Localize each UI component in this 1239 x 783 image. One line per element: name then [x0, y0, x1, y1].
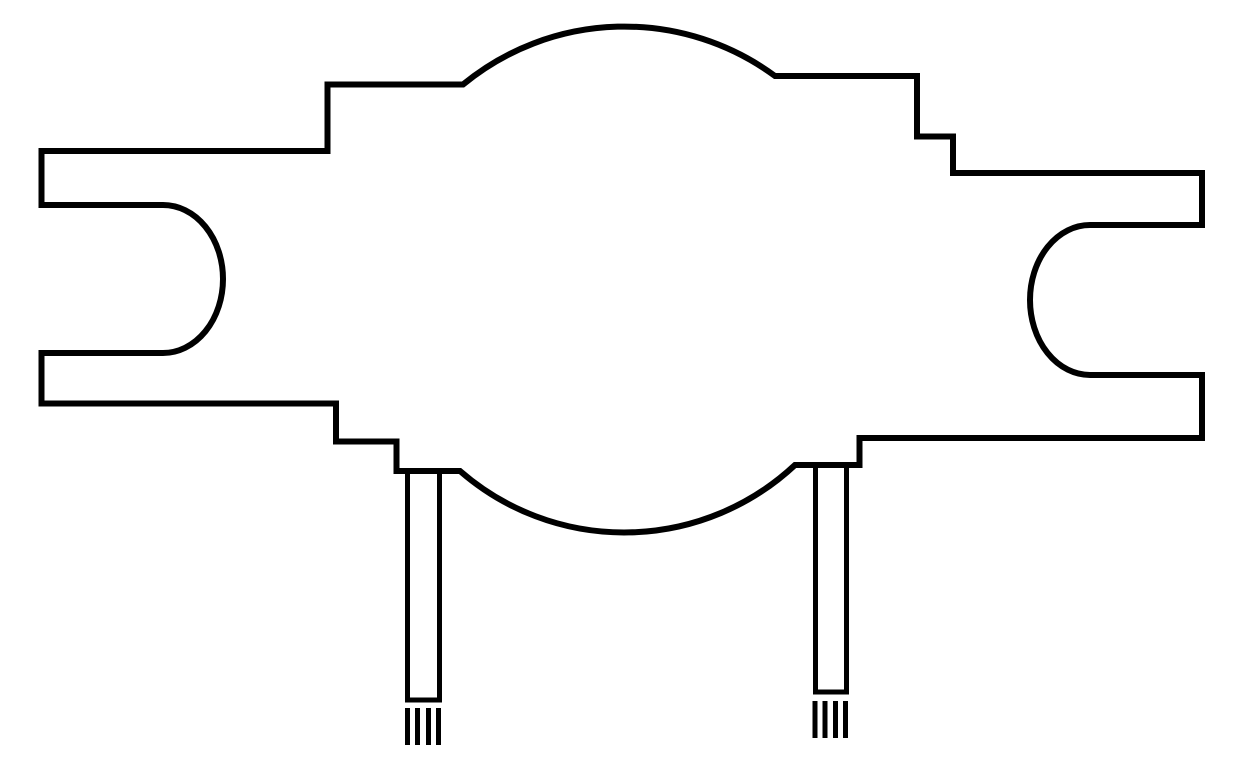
device-outline-figure [0, 0, 1239, 783]
lead-break-hatching-group [408, 701, 846, 745]
device-body-outline [42, 27, 1203, 533]
device-body-group [42, 27, 1203, 533]
right-lead-pin [816, 466, 847, 692]
right-lead-break-hatching [815, 701, 846, 738]
lead-pins-group [408, 466, 847, 700]
figure-canvas [0, 0, 1239, 783]
left-lead-pin [408, 470, 440, 700]
left-lead-break-hatching [408, 708, 439, 745]
